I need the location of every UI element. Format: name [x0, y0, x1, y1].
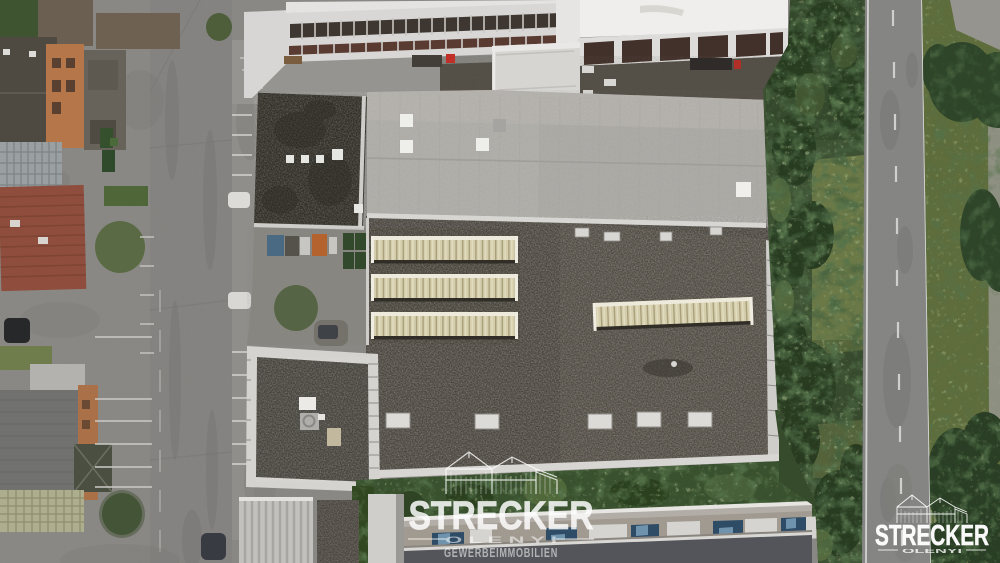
- svg-text:STRECKER: STRECKER: [409, 494, 594, 538]
- svg-text:GEWERBEIMMOBILIEN: GEWERBEIMMOBILIEN: [444, 546, 558, 560]
- svg-text:OLENYI: OLENYI: [902, 549, 963, 555]
- svg-text:O L E N Y I: O L E N Y I: [445, 535, 557, 546]
- svg-text:STRECKER: STRECKER: [875, 520, 989, 552]
